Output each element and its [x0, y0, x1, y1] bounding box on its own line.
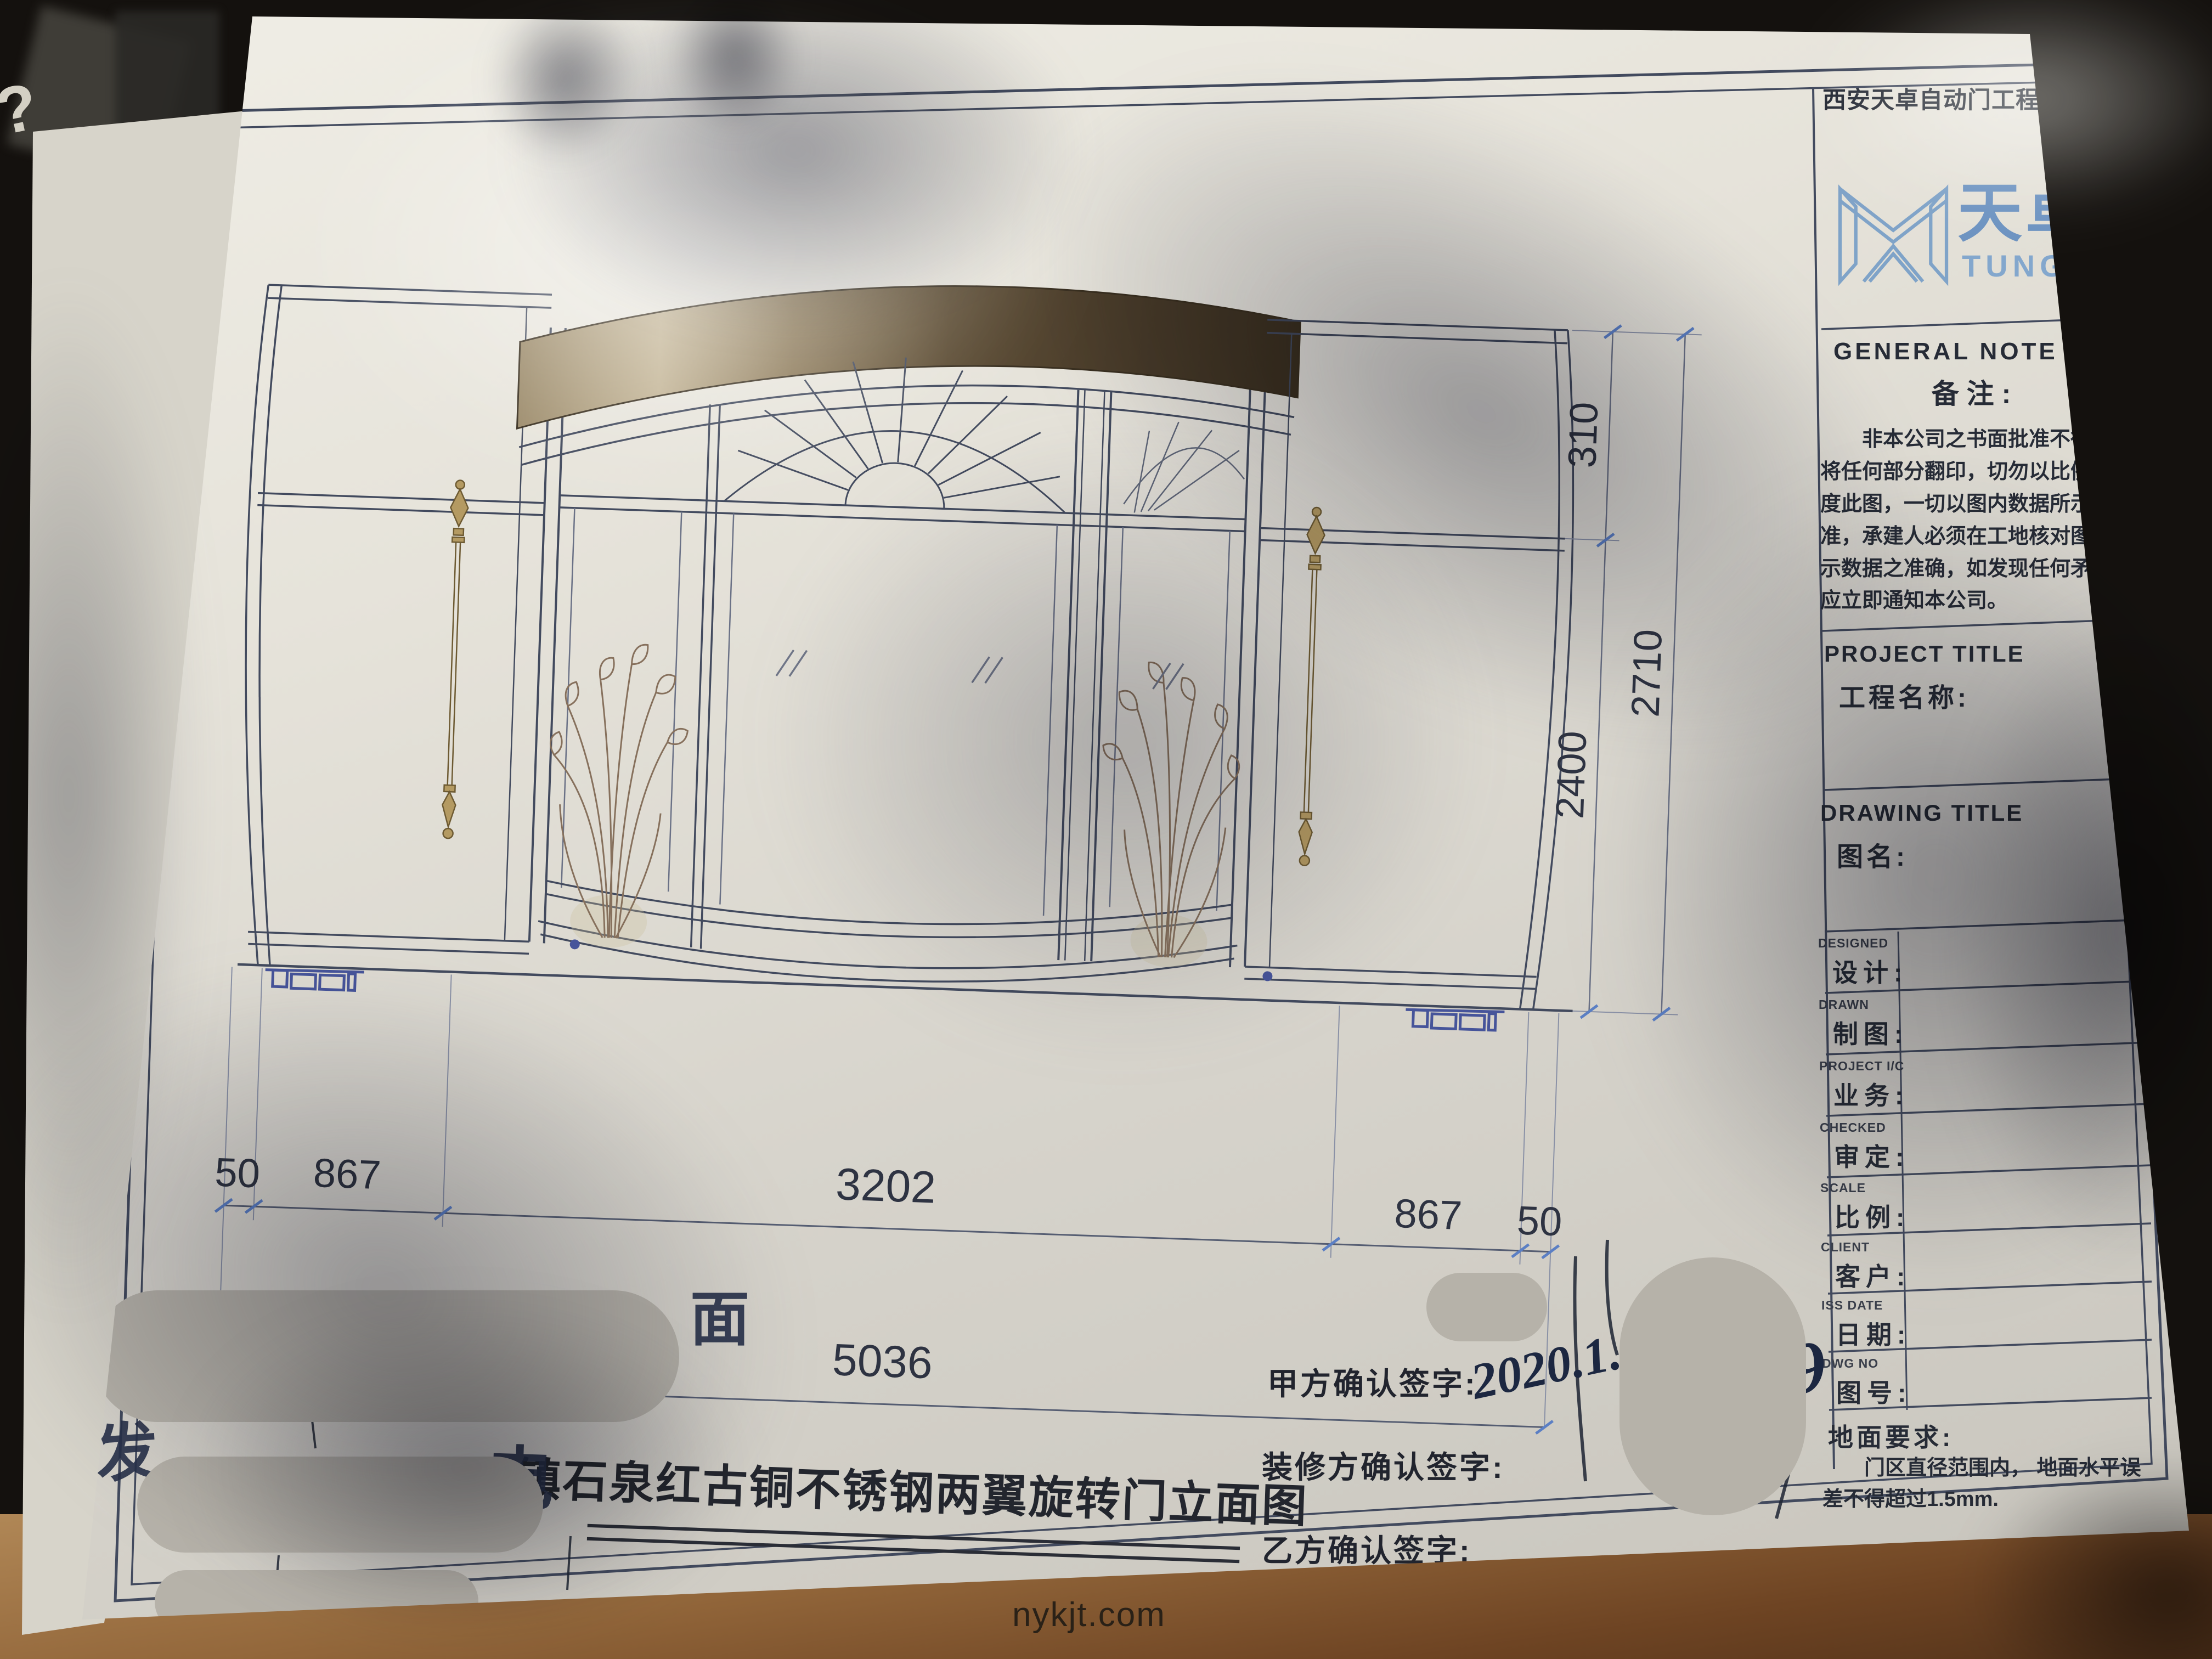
logo-cn-text: 天卓° — [1957, 160, 2108, 254]
row-label-cn: 日期: — [1836, 1315, 1911, 1351]
floor-anchor-left — [265, 969, 364, 991]
dim-2710: 2710 — [1623, 629, 1671, 718]
dim-5036-total: 5036 — [832, 1335, 933, 1388]
glass-mark — [972, 656, 1003, 684]
floor-req-title: 地面要求: — [1828, 1418, 1954, 1454]
drawing-caption: 镇石泉红古铜不锈钢两翼旋转门立面图 — [515, 1454, 1309, 1532]
row-label-en: CLIENT — [1821, 1240, 1910, 1255]
glass-mark — [1153, 663, 1184, 690]
logo-en-text: TUNGZO — [1962, 248, 2121, 284]
dim-50-left: 50 — [214, 1149, 261, 1197]
row-label-cn: 设计: — [1832, 953, 1908, 989]
row-label-cn: 客户: — [1835, 1257, 1910, 1293]
tb-row-date: ISS DATE 日期: — [1821, 1298, 1911, 1351]
row-label-en: PROJECT I/C — [1819, 1059, 1909, 1074]
bronze-canopy-band — [517, 270, 1301, 455]
signature-decorator: 装修方确认签字: — [1262, 1443, 1505, 1487]
left-lily-etching — [544, 641, 691, 950]
general-note-cn: 备注: — [1810, 372, 2140, 411]
floor-anchor-right — [1405, 1008, 1504, 1030]
tb-row-business: PROJECT I/C 业务: — [1819, 1059, 1909, 1112]
row-label-en: DWG NO — [1822, 1356, 1911, 1371]
photo-scene: nykjt.com ? — [0, 0, 2212, 1659]
dim-310: 310 — [1560, 401, 1606, 469]
project-title-cn: 工程名称: — [1839, 676, 1970, 714]
row-label-en: SCALE — [1820, 1181, 1910, 1195]
row-label-en: DRAWN — [1819, 997, 1908, 1012]
redaction-blob — [1620, 1257, 1806, 1515]
glass-mark — [776, 650, 807, 677]
row-label-en: ISS DATE — [1821, 1298, 1911, 1313]
watermark-text: nykjt.com — [1012, 1595, 1166, 1634]
signature-party-a: 甲方确认签字: — [1267, 1359, 1477, 1404]
drawing-title-cn: 图名: — [1837, 835, 1908, 873]
row-label-en: DESIGNED — [1818, 936, 1908, 951]
tb-row-design: DESIGNED 设计: — [1818, 936, 1908, 989]
drawing-title-en: DRAWING TITLE — [1820, 800, 2023, 826]
row-label-cn: 审定: — [1834, 1137, 1909, 1173]
left-side-panel — [233, 284, 552, 974]
vertical-dimensions: 310 2400 2710 — [1541, 324, 1702, 1022]
right-lily-etching — [1096, 661, 1243, 970]
tb-row-scale: SCALE 比例: — [1820, 1181, 1910, 1234]
right-door-handle — [1296, 507, 1326, 866]
dim-50-right: 50 — [1516, 1198, 1563, 1245]
rear-sunburst-partial — [1124, 420, 1246, 517]
dim-3202: 3202 — [835, 1159, 936, 1212]
tb-row-client: CLIENT 客户: — [1821, 1240, 1910, 1293]
left-door-handle — [439, 480, 469, 839]
tungzo-logo-mark — [1830, 142, 1956, 331]
general-note-body: 非本公司之书面批准不得随意将任何部分翻印，切勿以比例尺量度此图，一切以图内数据所… — [1820, 424, 2147, 617]
row-label-cn: 制图: — [1833, 1014, 1908, 1051]
redaction-blob — [1426, 1273, 1547, 1341]
row-label-cn: 图号: — [1836, 1373, 1911, 1409]
row-label-cn: 业务: — [1833, 1076, 1909, 1112]
tb-row-drawn: DRAWN 制图: — [1819, 997, 1908, 1051]
tb-row-dwgno: DWG NO 图号: — [1822, 1356, 1911, 1409]
dim-867-left: 867 — [313, 1150, 382, 1198]
redaction-blob — [92, 1290, 679, 1422]
floor-req-body: 门区直径范围内， 地面水平误差不得超过1.5mm. — [1822, 1453, 2152, 1515]
redaction-blob — [137, 1457, 543, 1553]
logo-degree-mark: ° — [2093, 177, 2108, 209]
tb-row-approved: CHECKED 审定: — [1820, 1120, 1909, 1173]
company-name: 西安天卓自动门工程有限公司 — [1815, 81, 2144, 115]
right-side-panel — [1244, 320, 1581, 1011]
project-title-en: PROJECT TITLE — [1824, 641, 2025, 667]
general-note-en: GENERAL NOTE — [1833, 338, 2058, 365]
dim-2400: 2400 — [1548, 730, 1595, 820]
stray-char: 面 — [690, 1272, 749, 1357]
row-label-en: CHECKED — [1820, 1120, 1909, 1135]
row-label-cn: 比例: — [1835, 1198, 1910, 1234]
dim-867-right: 867 — [1393, 1190, 1463, 1238]
blueprint-paper: 310 2400 2710 50 867 — [0, 0, 2212, 1659]
caption-row: 镇石泉红古铜不锈钢两翼旋转门立面图 — [514, 1454, 1309, 1564]
